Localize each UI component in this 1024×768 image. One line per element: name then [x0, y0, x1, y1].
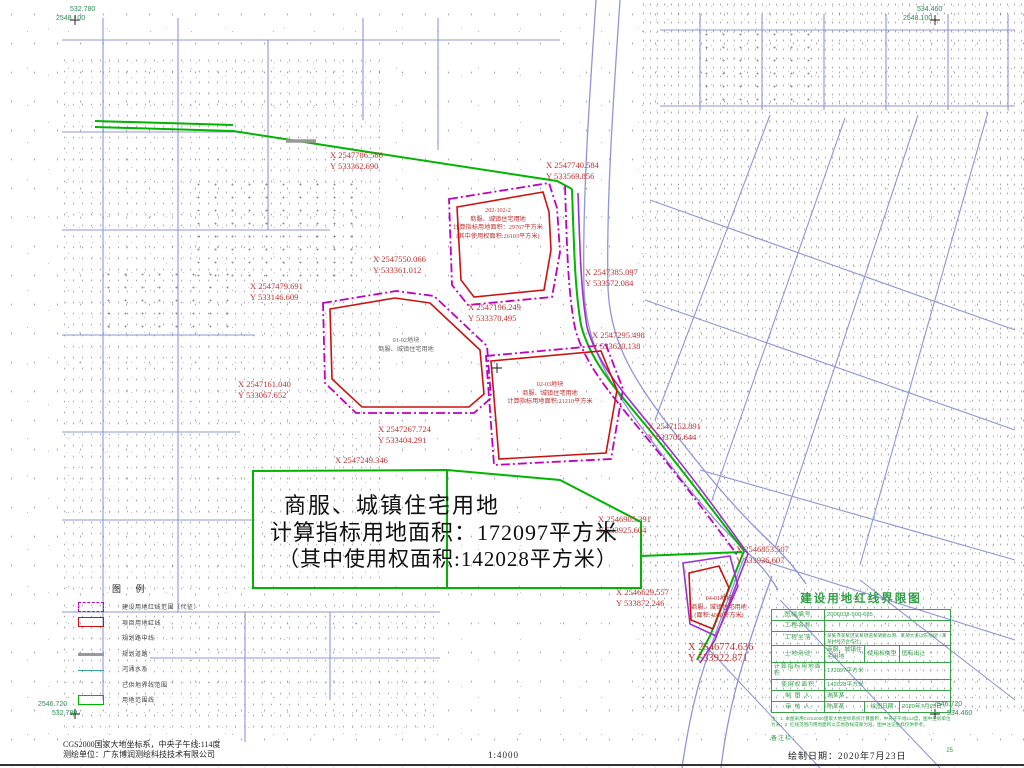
titleblock-row-label: 工程名称 — [772, 621, 825, 631]
titleblock-row-value: 142028平方米 — [825, 680, 950, 690]
title-block-heading: 建设用地红线界限图 — [771, 590, 951, 606]
coordinate-text: X 2547550.066 — [373, 254, 426, 265]
coordinate-text: Y 533922.871 — [688, 653, 753, 664]
legend-swatch-none — [78, 680, 104, 689]
parcel-annotation-line: 商服、城镇住宅用地 — [436, 216, 560, 225]
coordinate-label: X 2546629.557Y 533872.246 — [616, 587, 669, 609]
legend-item: 河涌水系 — [78, 661, 238, 677]
corner-coord-text: 2546.720 — [38, 701, 67, 708]
legend-item: 规划道路 — [78, 646, 238, 662]
parcel-annotation: 04-01地块商服、城镇住宅用地(面积:4060平方米) — [682, 595, 756, 621]
coordinate-label: X 2547479.691Y 533146.609 — [250, 281, 303, 303]
parcel-annotation-line: 商服、城镇住宅用地 — [360, 346, 452, 355]
coordinate-text: Y 533936.607 — [736, 555, 789, 566]
coordinate-text: Y 533361.012 — [373, 265, 426, 276]
coordinate-text: Y 533620.138 — [592, 341, 645, 352]
legend-item: 项目用地红线 — [78, 615, 238, 631]
parcel-annotation-line: 商服、城镇住宅用地 — [494, 390, 606, 399]
legend-swatch-none — [78, 633, 104, 642]
titleblock-row: 工程坐落某某市某某区某某街道某某路以南、某某大道以东地段（某某村经济合作社） — [772, 632, 950, 646]
titleblock-row: 审 核 人陈某某绘图日期2020年7月23日 — [772, 702, 950, 712]
parcel-annotation-line: 02-03地块 — [494, 381, 606, 390]
corner-coord-top-right: 534.460 2548.100 — [903, 5, 942, 23]
coordinate-text: Y 533569.856 — [546, 171, 599, 182]
parcel-annotation-line: (面积:4060平方米) — [682, 612, 756, 621]
land-use-type-text: 商服、城镇住宅用地 — [270, 492, 618, 519]
titleblock-row-label: 计算指标用地面积 — [772, 663, 825, 679]
survey-boundary-green — [95, 121, 744, 660]
coordinate-text: Y 533572.084 — [585, 278, 638, 289]
draw-date: 绘制日期：2020年7月23日 — [788, 749, 907, 762]
parcel-annotation-line: (其中使用权面积:26103平方米) — [436, 233, 560, 242]
legend-item-label: 项目用地红线 — [122, 618, 161, 627]
corner-coord-text: 534.460 — [903, 5, 942, 14]
parcel-annotation-line: 计算指标用地面积：29767平方米 — [436, 224, 560, 233]
coordinate-text: X 2547161.040 — [238, 379, 291, 390]
legend-item-label: 建设用地红线范围（代征） — [122, 602, 200, 611]
titleblock-row-value: 2006038-500-685 — [825, 610, 950, 620]
parcel-annotation-line: 商服、城镇住宅用地 — [682, 604, 756, 613]
use-right-area-text: （其中使用权面积:142028平方米） — [270, 546, 618, 573]
titleblock-row-label: 工程坐落 — [772, 632, 825, 645]
legend-swatch-gray-line — [78, 653, 104, 656]
legend-item: 建设用地红线范围（代征） — [78, 599, 238, 615]
title-block-page-number: 25 — [946, 748, 953, 754]
corner-coord-top-left: 532.780 2548.100 — [56, 5, 95, 23]
coordinate-text: Y 533146.609 — [250, 292, 303, 303]
titleblock-row-label: 图幅编号 — [772, 610, 825, 620]
titleblock-row-value2: 国有出让 — [900, 646, 950, 662]
legend: 图 例 建设用地红线范围（代征）项目用地红线规划路中线规划道路河涌水系已供地界线… — [78, 582, 238, 708]
titleblock-row: 制 图 人谢某某 — [772, 691, 950, 702]
titleblock-row-value: 谢某某 — [825, 691, 950, 701]
title-block-remark-label: 备注栏： — [771, 733, 951, 742]
coordinate-label: X 2547740.584Y 533569.856 — [546, 160, 599, 182]
corner-coord-text: 2548.100 — [903, 15, 932, 22]
corner-coord-text: 532.780 — [38, 709, 77, 718]
titleblock-row-label2: 绘图日期 — [864, 702, 900, 712]
titleblock-row-value: 陈某某 — [825, 702, 864, 712]
coordinate-text: X 2547740.584 — [546, 160, 599, 171]
titleblock-row-label: 土地用途 — [772, 646, 825, 662]
coordinate-text: Y 533362.690 — [330, 161, 383, 172]
page-bottom-border — [0, 764, 1024, 766]
legend-item-label: 河涌水系 — [122, 664, 148, 673]
coordinate-label: X 2547786.566Y 533362.690 — [330, 150, 383, 172]
parcel-annotation-line: 202-102-2 — [436, 207, 560, 216]
parcel-annotation-line: 01-02地块 — [360, 337, 452, 346]
titleblock-row: 图幅编号2006038-500-685 — [772, 610, 950, 621]
coordinate-label: X 2546853.507Y 533936.607 — [736, 544, 789, 566]
titleblock-row-value: 某某市某某区某某街道某某路以南、某某大道以东地段（某某村经济合作社） — [825, 632, 950, 645]
survey-company-line: 测绘单位：广东博润测绘科技技术有限公司 — [63, 750, 221, 760]
legend-rows: 建设用地红线范围（代征）项目用地红线规划路中线规划道路河涌水系已供地界线范围用地… — [78, 599, 238, 708]
legend-item-label: 规划道路 — [122, 649, 148, 658]
coordinate-text: Y 533370.495 — [468, 313, 521, 324]
coordinate-text: X 2547479.691 — [250, 281, 303, 292]
coordinate-label: X 2546774.636Y 533922.871 — [688, 642, 753, 664]
coordinate-system-line: CGS2000国家大地坐标系，中央子午线:114度 — [63, 740, 221, 750]
coordinate-text: X 2546774.636 — [688, 642, 753, 653]
redline-map-page: 532.780 2548.100 534.460 2548.100 2546.7… — [0, 0, 1024, 768]
legend-item-label: 规划路中线 — [122, 633, 155, 642]
legend-swatch-magenta-dashed-rect — [78, 602, 104, 612]
titleblock-row: 使用权面积142028平方米 — [772, 680, 950, 691]
corner-coord-text: 532.780 — [56, 5, 95, 14]
coordinate-label: X 2547249.346 — [335, 455, 388, 466]
coordinate-text: Y 533872.246 — [616, 598, 669, 609]
coordinate-system-note: CGS2000国家大地坐标系，中央子午线:114度 测绘单位：广东博润测绘科技技… — [63, 740, 221, 760]
legend-swatch-green-rect — [78, 695, 104, 705]
coordinate-text: Y 533404.291 — [378, 435, 431, 446]
title-block-table: 图幅编号2006038-500-685工程名称工程坐落某某市某某区某某街道某某路… — [771, 609, 951, 713]
coordinate-text: X 2546629.557 — [616, 587, 669, 598]
parcel-annotation-line: 04-01地块 — [682, 595, 756, 604]
legend-item: 已供地界线范围 — [78, 677, 238, 693]
legend-swatch-teal-line — [78, 670, 104, 672]
coordinate-label: X 2547152.891Y 533705.644 — [648, 421, 701, 443]
legend-title: 图 例 — [112, 582, 238, 595]
legend-item: 用地范围线 — [78, 692, 238, 708]
parcel-annotation: 01-02地块商服、城镇住宅用地 — [360, 337, 452, 354]
title-block: 建设用地红线界限图 图幅编号2006038-500-685工程名称工程坐落某某市… — [771, 590, 951, 742]
coordinate-label: X 2547385.097Y 533572.084 — [585, 267, 638, 289]
coordinate-label: X 2547550.066Y 533361.012 — [373, 254, 426, 276]
titleblock-row-label2: 使用权类型 — [864, 646, 900, 662]
coordinate-text: X 2547786.566 — [330, 150, 383, 161]
titleblock-row-label: 制 图 人 — [772, 691, 825, 701]
titleblock-row: 计算指标用地面积172097平方米 — [772, 663, 950, 680]
titleblock-row-value2: 2020年7月23日 — [900, 702, 950, 712]
titleblock-row-label: 使用权面积 — [772, 680, 825, 690]
coordinate-text: X 2547196.249 — [468, 302, 521, 313]
coordinate-text: Y 533705.644 — [648, 432, 701, 443]
title-block-notes: 注：1. 本图采用CGS2000国家大地坐标系统计算面积，中央子午线114度，图… — [771, 716, 951, 728]
titleblock-row-label: 审 核 人 — [772, 702, 825, 712]
coordinate-text: X 2547249.346 — [335, 455, 388, 466]
coordinate-text: X 2547385.097 — [585, 267, 638, 278]
corner-coord-text: 2548.100 — [56, 15, 85, 22]
coordinate-text: Y 533067.652 — [238, 390, 291, 401]
legend-item: 规划路中线 — [78, 630, 238, 646]
coordinate-label: X 2547295.498Y 533620.138 — [592, 330, 645, 352]
titleblock-row: 土地用途商服、城镇住宅用地使用权类型国有出让 — [772, 646, 950, 663]
parcel-annotation-line: 计算指标用地面积:21210平方米 — [494, 398, 606, 407]
legend-swatch-red-rect — [78, 617, 104, 627]
titleblock-row: 工程名称 — [772, 621, 950, 632]
coordinate-label: X 2547267.724Y 533404.291 — [378, 424, 431, 446]
main-land-annotation: 商服、城镇住宅用地 计算指标用地面积：172097平方米 （其中使用权面积:14… — [270, 492, 618, 573]
coordinate-text: X 2547267.724 — [378, 424, 431, 435]
titleblock-row-value: 商服、城镇住宅用地 — [825, 646, 864, 662]
coordinate-text: X 2547295.498 — [592, 330, 645, 341]
legend-item-label: 已供地界线范围 — [122, 680, 168, 689]
parcel-annotation: 202-102-2商服、城镇住宅用地计算指标用地面积：29767平方米(其中使用… — [436, 207, 560, 241]
titleblock-row-value — [825, 621, 950, 631]
coordinate-label: X 2547161.040Y 533067.652 — [238, 379, 291, 401]
land-area-text: 计算指标用地面积：172097平方米 — [270, 519, 618, 546]
parcel-annotation: 02-03地块商服、城镇住宅用地计算指标用地面积:21210平方米 — [494, 381, 606, 407]
coordinate-label: X 2547196.249Y 533370.495 — [468, 302, 521, 324]
coordinate-text: X 2547152.891 — [648, 421, 701, 432]
titleblock-row-value: 172097平方米 — [825, 663, 950, 679]
legend-item-label: 用地范围线 — [122, 695, 155, 704]
map-scale: 1:4000 — [488, 750, 519, 760]
corner-coord-bottom-left: 2546.720 532.780 — [38, 700, 77, 718]
coordinate-text: X 2546853.507 — [736, 544, 789, 555]
